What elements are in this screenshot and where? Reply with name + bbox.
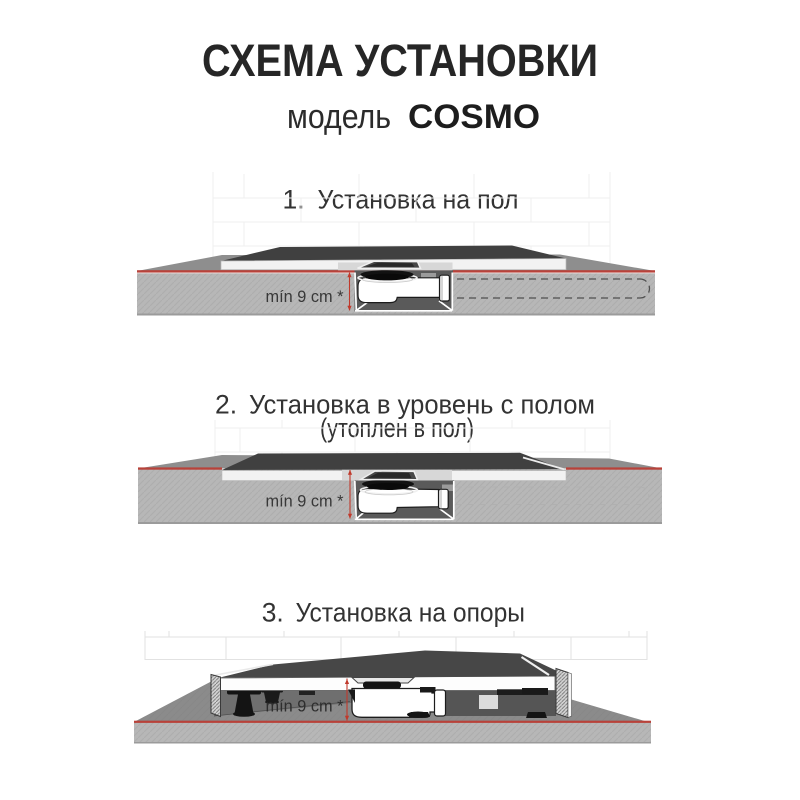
svg-text:mín 9 cm *: mín 9 cm * — [266, 697, 344, 716]
svg-text:СХЕМА УСТАНОВКИ: СХЕМА УСТАНОВКИ — [202, 35, 598, 86]
svg-text:COSMO: COSMO — [408, 98, 540, 136]
svg-text:mín 9 cm *: mín 9 cm * — [266, 287, 344, 306]
svg-text:Установка на пол: Установка на пол — [318, 185, 519, 215]
svg-text:Установка на опоры: Установка на опоры — [296, 597, 526, 627]
svg-text:mín 9 cm *: mín 9 cm * — [266, 492, 344, 511]
svg-text:2.: 2. — [215, 390, 237, 420]
svg-text:3.: 3. — [262, 597, 284, 627]
svg-text:модель: модель — [287, 98, 391, 136]
